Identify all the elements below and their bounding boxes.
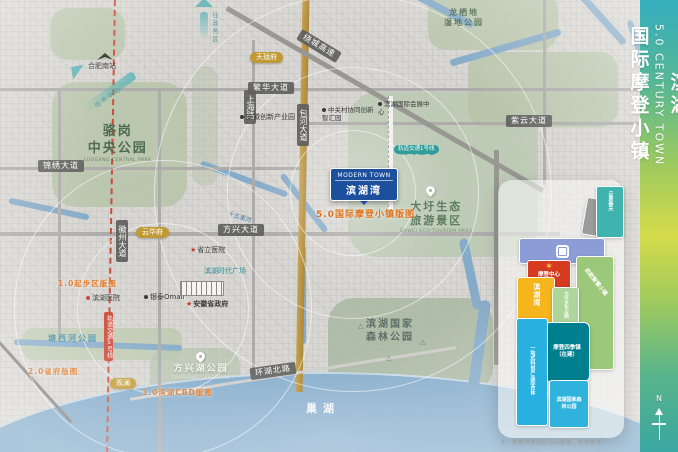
poi-label: 中关村协同创新智汇园 xyxy=(322,106,374,122)
phase-label-2: 2.0省府版图 xyxy=(28,366,78,377)
zone-spring: 云景春天 xyxy=(596,186,624,238)
metro-line1-chip: 轨道交通1号线 xyxy=(394,145,439,154)
project-name-en: MODERN TOWN xyxy=(335,172,393,181)
metro-line5-badge: 轨道交通5号线 xyxy=(104,312,113,361)
direction-arrow-tail xyxy=(200,12,208,40)
poi-dot-icon xyxy=(86,296,90,300)
phase-label-5: 5.0国际摩登小镇版图 xyxy=(316,207,415,220)
zone-label: 滨湖国家森林公园 xyxy=(555,397,583,411)
zone-label: 滨湖湾 xyxy=(531,283,540,307)
park-title: 中央公园 xyxy=(88,141,148,156)
title-cn-prefix: 滨湖 xyxy=(666,72,678,118)
poi-label: 滨湖医院 xyxy=(92,294,120,302)
road-label-huizhou: 徽州大道 xyxy=(116,220,128,262)
compass-cross xyxy=(652,423,666,425)
compass: N xyxy=(649,394,669,442)
direction-arrow-head xyxy=(195,0,213,7)
poi-intime-mall: 银泰Omall xyxy=(144,293,185,302)
poi-convention-center: 滨湖国际会展中心 xyxy=(378,100,430,116)
park-label-forest: 滨湖国家 森林公园 xyxy=(366,318,414,344)
poi-binhu-times-square: 滨湖时代广场 xyxy=(204,267,246,276)
park-title: 旅游景区 xyxy=(410,214,462,227)
tree-icon: △ xyxy=(358,322,363,330)
zone-culture-park: 大圩文化公园 xyxy=(552,287,579,327)
project-marker-modern-town: MODERN TOWN 滨湖湾 xyxy=(330,168,398,201)
zone-label: 云景春天 xyxy=(607,191,614,211)
tree-icon: △ xyxy=(420,338,425,346)
phase-label-3: 3.0滨湖CBD版图 xyxy=(142,387,213,398)
road-label-ziyun: 紫云大道 xyxy=(506,115,552,127)
compass-n-label: N xyxy=(649,394,669,403)
poi-label: 合肥南站 xyxy=(88,62,116,70)
direction-arrow-label: 往政务区 xyxy=(210,12,219,44)
star-icon: ★ xyxy=(186,300,192,308)
park-title: 骆岗 xyxy=(103,124,133,139)
project-name-cn: 滨湖湾 xyxy=(335,181,393,197)
park-subtitle: LUOGANG CENTRAL PARK xyxy=(84,158,152,164)
poi-dot-icon xyxy=(240,115,244,119)
hsr-station-icon xyxy=(96,52,114,62)
gold-place-label: 观澜 xyxy=(110,378,136,389)
compass-stem xyxy=(659,410,661,440)
park-label-tangxi: 塘西河公园 xyxy=(48,334,98,344)
park-title: 龙栖地 xyxy=(449,8,479,17)
park-subtitle: DAWEI ECO-TOURISM AREA xyxy=(400,229,472,235)
road-label-jinxiu: 锦绣大道 xyxy=(38,160,84,172)
poi-dot-icon xyxy=(144,295,148,299)
park-title: 森林公园 xyxy=(366,332,414,343)
park-title: 方兴湖公园 xyxy=(174,364,229,374)
zone-forest-park: 滨湖国家森林公园 xyxy=(549,380,589,428)
road-label-fangxing: 方兴大道 xyxy=(218,224,264,236)
brand-logo-icon xyxy=(556,245,569,258)
title-sidebar: 滨湖 5.0 CENTURY TOWN 国际摩登小镇 xyxy=(640,0,678,452)
poi-dot-icon xyxy=(322,108,326,112)
gold-place-label: 天珑府 xyxy=(250,52,283,63)
title-cn-suffix: 国际摩登小镇 xyxy=(626,26,653,164)
government-building-icon xyxy=(180,281,224,296)
poi-label: 省立医院 xyxy=(197,246,225,254)
park-title: 塘西河公园 xyxy=(48,334,98,343)
poi-label: 安徽创新产业园 xyxy=(246,113,295,121)
zone-label: 启航智慧小镇 xyxy=(581,266,609,299)
zone-four-seasons: 摩登四季镇（在建） xyxy=(544,322,590,382)
park-subtitle: FANGXING LAKE PARK xyxy=(172,376,230,382)
zone-label: 摩登四季镇（在建） xyxy=(550,345,584,360)
park-title: 湿地公园 xyxy=(444,18,484,27)
zone-label: 一站式科创产品综合体 xyxy=(529,345,536,395)
park-title: 大圩生态 xyxy=(410,200,462,213)
poi-zhongguancun: 中关村协同创新智汇园 xyxy=(322,106,374,122)
road-label-baohe: 包河大道 xyxy=(297,104,309,146)
poi-binhu-hospital: 滨湖医院 xyxy=(86,294,120,303)
park-label-fangxing: 方兴湖公园 FANGXING LAKE PARK xyxy=(172,364,230,382)
phase-label-1: 1.0起步区版图 xyxy=(58,278,117,289)
park-label-longqidi: 龙栖地 湿地公园 xyxy=(444,8,484,29)
poi-label: 安徽省政府 xyxy=(193,300,228,308)
gold-place-label: 云华府 xyxy=(136,227,169,238)
poi-label: 滨湖时代广场 xyxy=(204,267,246,275)
poi-industry-park: 安徽创新产业园 xyxy=(240,113,295,122)
title-en: 5.0 CENTURY TOWN xyxy=(653,24,666,166)
park-title: 滨湖国家 xyxy=(366,319,414,330)
poi-hefei-south-station: 合肥南站 xyxy=(88,52,116,71)
zone-label: 大圩文化公园 xyxy=(562,291,568,318)
star-icon: ★ xyxy=(190,246,196,254)
zone-binhuwan: 滨湖湾 xyxy=(517,277,555,324)
lake-label-chaohu: 巢湖 xyxy=(306,400,340,416)
poi-dot-icon xyxy=(378,102,382,106)
poster-title: 滨湖 5.0 CENTURY TOWN 国际摩登小镇 xyxy=(626,18,678,172)
zone-tech-complex: 一站式科创产品综合体 xyxy=(516,318,548,426)
poi-provincial-hospital: ★省立医院 xyxy=(190,246,225,255)
tree-icon: △ xyxy=(386,354,391,362)
disclaimer-text: 注：本图为项目区位示意图，仅供参考 xyxy=(500,438,602,446)
starburst-icon: ✶ xyxy=(528,263,570,272)
poi-label: 滨湖国际会展中心 xyxy=(378,100,430,116)
location-map-poster: 往市中心 往政务区 绕城高速 繁华大道 紫云大道 方兴大道 环湖北路 上海路 包… xyxy=(0,0,678,452)
park-label-luogang: 骆岗 中央公园 LUOGANG CENTRAL PARK xyxy=(84,124,152,164)
